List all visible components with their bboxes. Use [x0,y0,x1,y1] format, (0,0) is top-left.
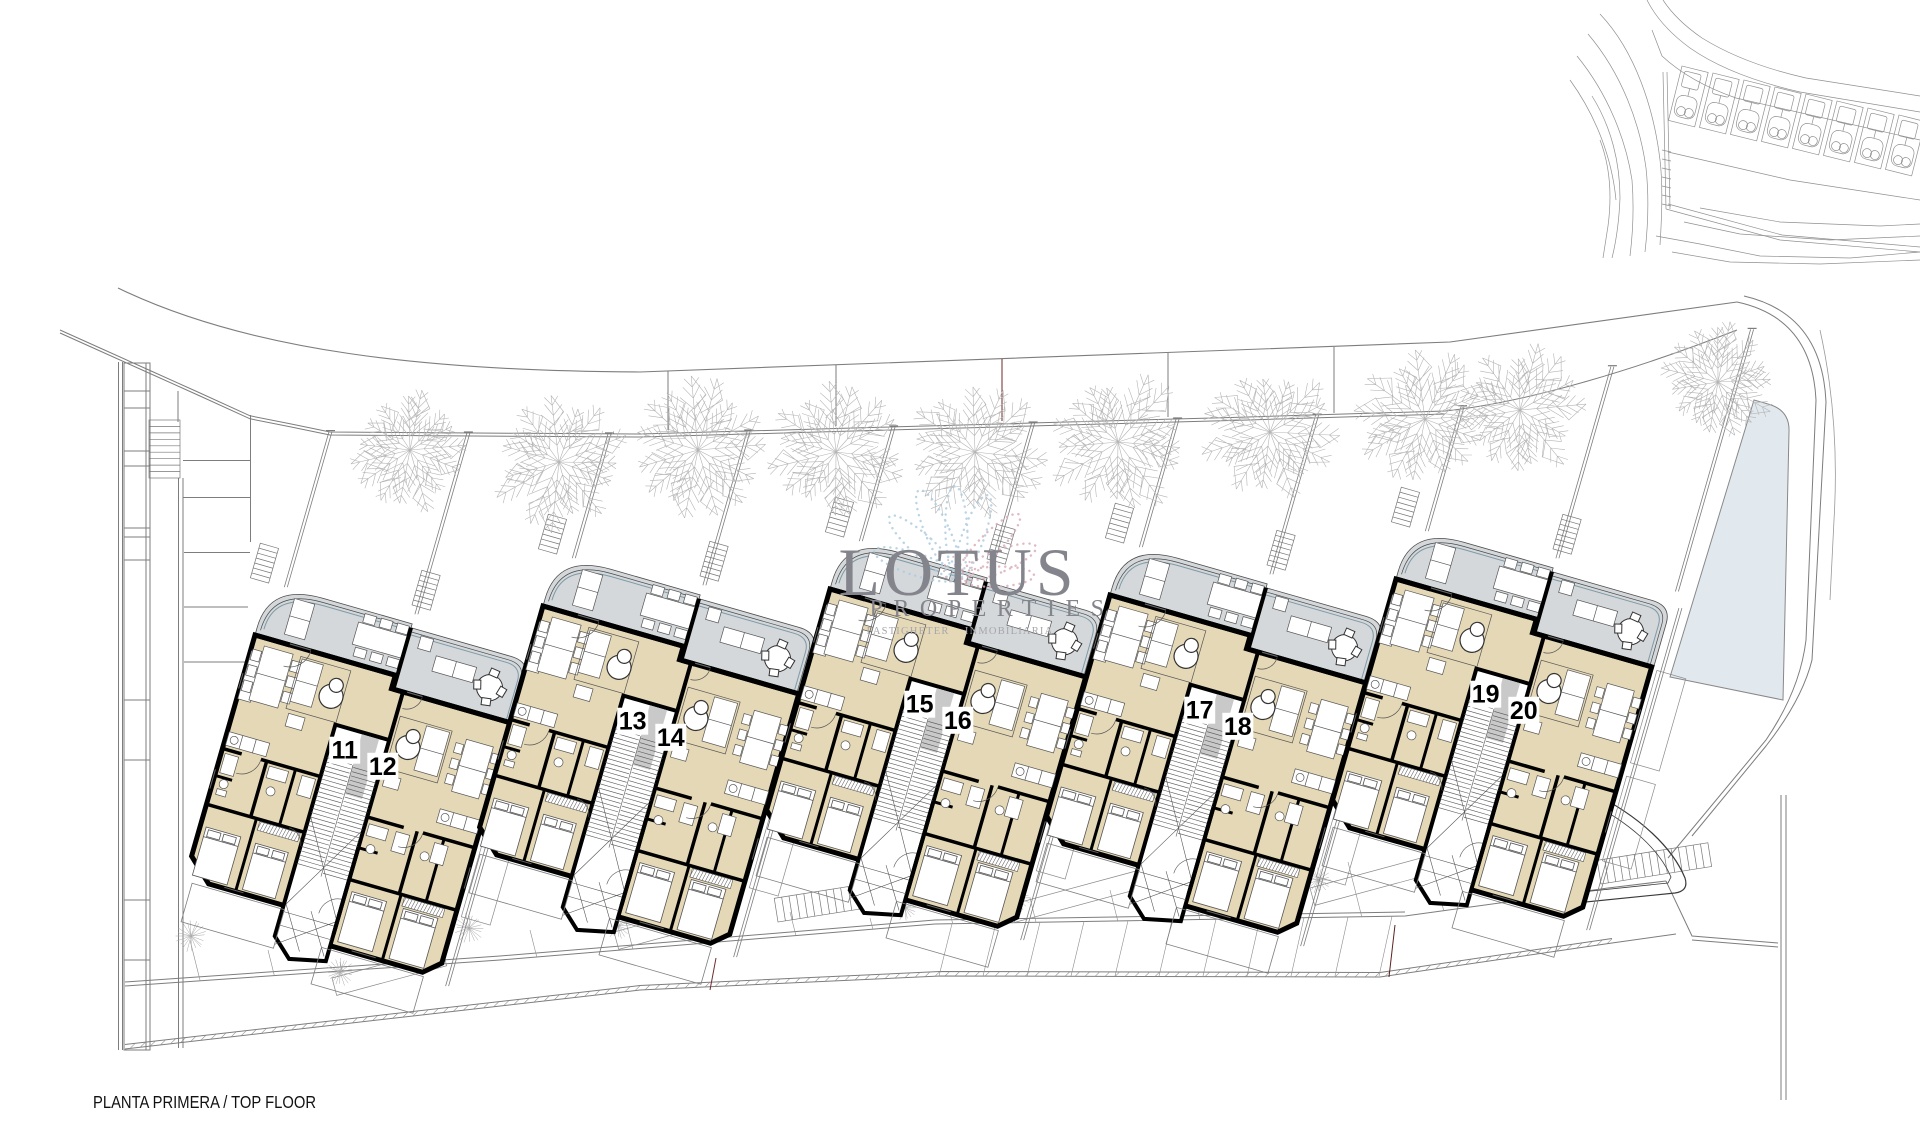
svg-text:15: 15 [906,691,934,719]
svg-text:17: 17 [1186,697,1214,725]
svg-text:14: 14 [657,724,685,752]
svg-text:FASTIGHETER INMOBILIARIA: FASTIGHETER INMOBILIARIA [867,626,1054,637]
svg-text:20: 20 [1510,697,1538,725]
svg-text:11: 11 [331,737,358,765]
svg-text:18: 18 [1224,713,1252,741]
svg-text:PROPERTIES: PROPERTIES [870,596,1115,622]
svg-text:19: 19 [1472,681,1500,709]
svg-text:16: 16 [944,707,972,735]
svg-text:12: 12 [369,753,397,781]
svg-text:PLANTA PRIMERA / TOP FLOOR: PLANTA PRIMERA / TOP FLOOR [93,1092,316,1112]
svg-text:13: 13 [619,708,647,736]
